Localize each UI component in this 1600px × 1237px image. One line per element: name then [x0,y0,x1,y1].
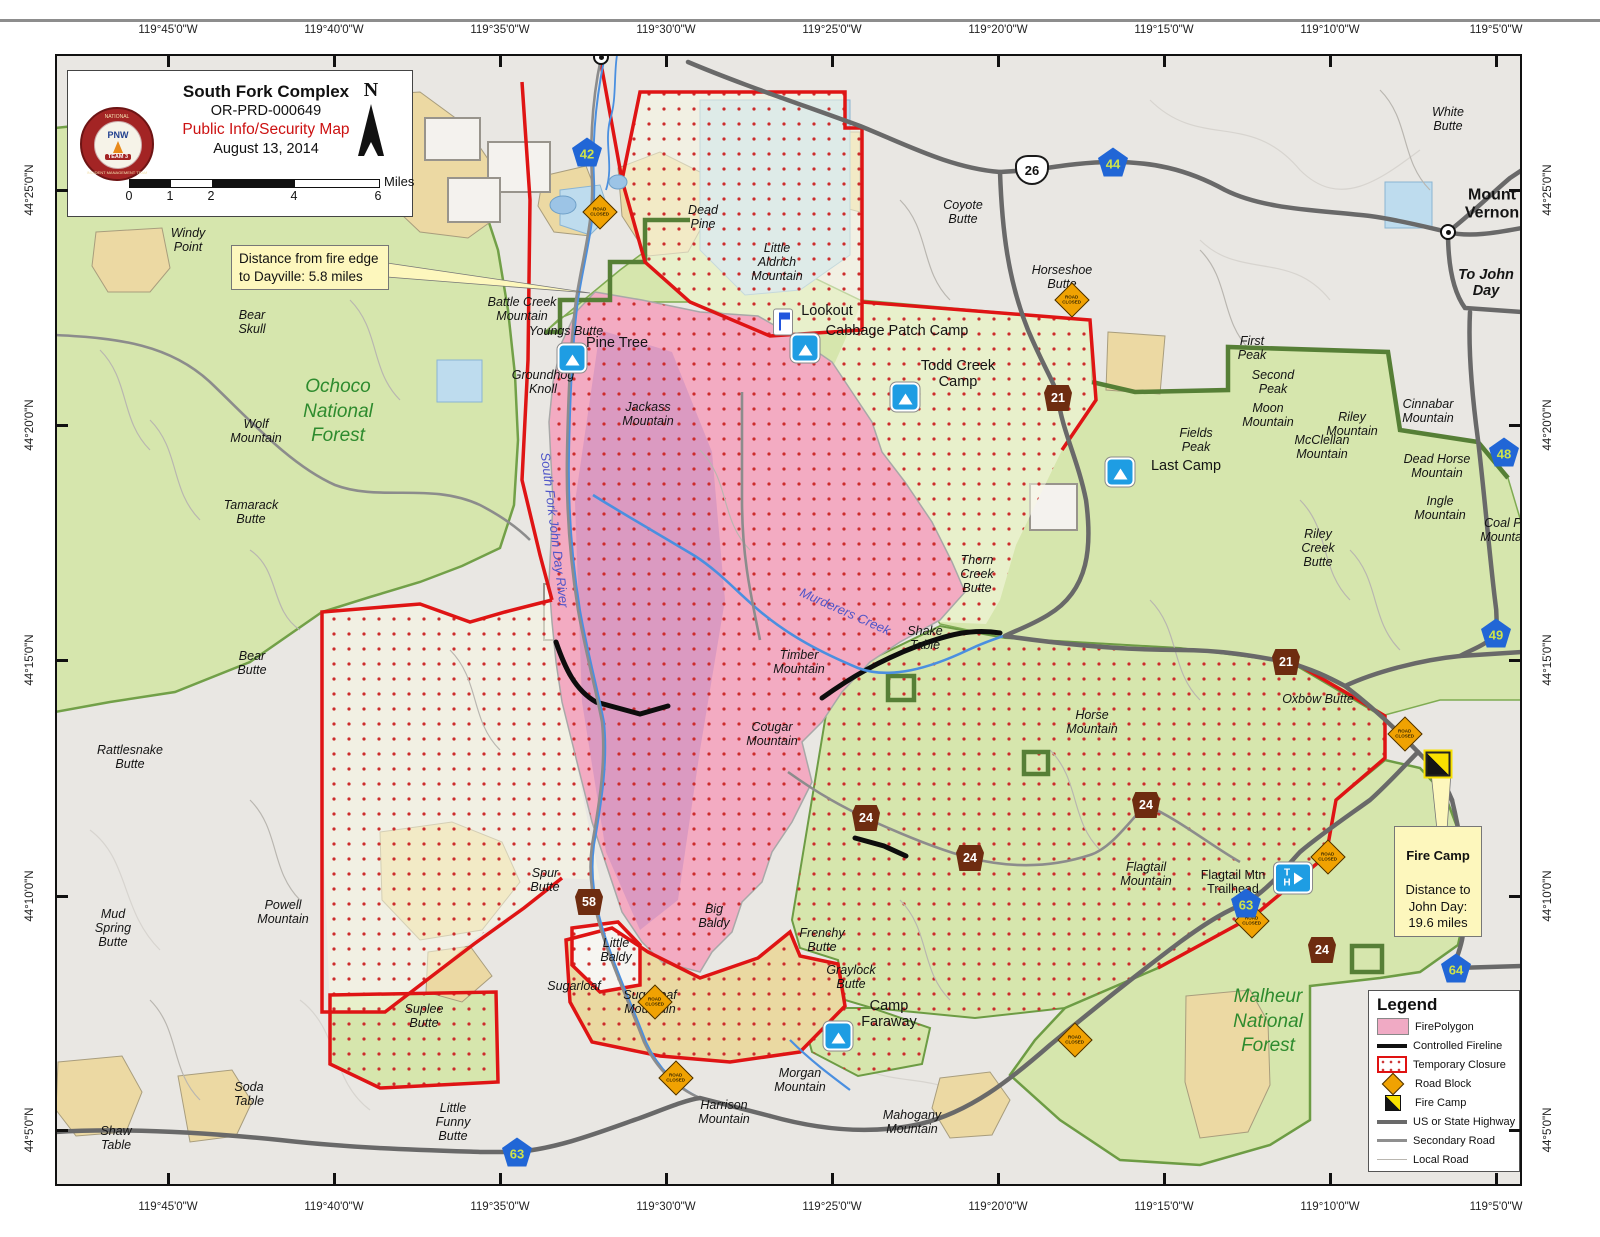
north-arrow-icon [358,104,384,156]
forest-route-shield: 24 [956,845,984,871]
fire-incident-map-page: { "title_block": { "incident_name": "Sou… [0,0,1600,1237]
grid-tick [1495,54,1498,67]
firecamp-callout-title: Fire Camp [1402,848,1474,865]
route-number: 48 [1497,447,1511,462]
campground-icon [891,383,920,412]
legend-row-local: Local Road [1377,1150,1511,1169]
grid-coordinate-label: 119°40'0"W [304,24,363,36]
lake [609,175,627,189]
grid-coordinate-label: 119°15'0"W [1134,24,1193,36]
tent-glyph [1113,469,1127,480]
map-date: August 13, 2014 [156,140,376,158]
incident-name: South Fork Complex [156,81,376,102]
scale-tick: 1 [167,189,174,203]
grid-coordinate-label: 44°15'0"N [24,634,36,685]
highway-swatch [1377,1120,1407,1124]
route-number: 26 [1025,163,1039,178]
route-number: 42 [580,147,594,162]
logo-team-text: TEAM 3 [105,154,131,160]
legend-row-firepolygon: FirePolygon [1377,1017,1511,1036]
road-block-text: ROAD CLOSED [591,207,610,217]
forest-route-shield: 21 [1272,649,1300,675]
legend-title: Legend [1377,995,1511,1015]
map-viewport: Distance from fire edge to Dayville: 5.8… [55,54,1522,1186]
grid-coordinate-label: 119°35'0"W [470,1201,529,1213]
scale-tick: 6 [375,189,382,203]
route-number: 24 [859,811,873,825]
campground-icon [1106,458,1135,487]
road-block-swatch [1382,1072,1405,1095]
scale-tick: 0 [126,189,133,203]
grid-coordinate-label: 44°25'0"N [1542,164,1554,215]
route-number: 58 [582,895,596,909]
grid-tick [167,54,170,67]
route-number: 21 [1279,655,1293,669]
road-block-text: ROAD CLOSED [667,1073,686,1083]
grid-coordinate-label: 119°5'0"W [1470,24,1523,36]
grid-coordinate-label: 119°30'0"W [636,24,695,36]
lookout-flag-icon [773,309,793,336]
grid-coordinate-label: 44°5'0"N [1542,1108,1554,1153]
grid-tick [831,54,834,67]
legend-row-roadblock: Road Block [1377,1074,1511,1093]
grid-coordinate-label: 119°25'0"W [802,24,861,36]
grid-tick [1509,189,1522,192]
legend-label: Temporary Closure [1413,1059,1506,1071]
lake [550,196,576,214]
grid-tick [1495,1173,1498,1186]
legend-row-firecamp: Fire Camp [1377,1093,1511,1112]
map-canvas [55,54,1522,1186]
map-type: Public Info/Security Map [156,120,376,139]
forest-route-shield: 24 [852,805,880,831]
road-block-text: ROAD CLOSED [646,997,665,1007]
legend-label: Secondary Road [1413,1135,1495,1147]
grid-tick [665,54,668,67]
road-block-text: ROAD CLOSED [1243,916,1262,926]
legend-row-secondary: Secondary Road [1377,1131,1511,1150]
forest-route-shield: 58 [575,889,603,915]
logo-ring-text: INCIDENT MANAGEMENT TEAM [82,170,152,175]
grid-coordinate-label: 44°10'0"N [1542,870,1554,921]
grid-coordinate-label: 119°20'0"W [968,24,1027,36]
legend-label: Controlled Fireline [1413,1040,1502,1052]
legend-label: Road Block [1415,1078,1471,1090]
route-number: 49 [1489,628,1503,643]
grid-tick [333,54,336,67]
route-number: 44 [1106,157,1120,172]
grid-tick [1163,54,1166,67]
tent-glyph [898,394,912,405]
grid-coordinate-label: 119°25'0"W [802,1201,861,1213]
tent-glyph [831,1033,845,1044]
incident-team-logo: NATIONAL PNW TEAM 3 INCIDENT MANAGEMENT … [80,107,154,181]
forest-route-shield: 24 [1308,937,1336,963]
grid-tick [1509,659,1522,662]
grid-tick [499,1173,502,1186]
grid-tick [831,1173,834,1186]
grid-tick [1509,1129,1522,1132]
fire-polygon-swatch [1377,1018,1409,1035]
legend-label: Fire Camp [1415,1097,1466,1109]
scale-tick: 4 [291,189,298,203]
grid-tick [665,1173,668,1186]
trailhead-text: T H [1283,869,1290,888]
flame-icon [113,141,123,153]
grid-tick [55,659,68,662]
grid-coordinate-label: 44°25'0"N [24,164,36,215]
route-number: 24 [1139,798,1153,812]
grid-tick [1509,895,1522,898]
grid-tick [1509,424,1522,427]
temporary-closure-swatch [1377,1056,1407,1073]
road-block-text: ROAD CLOSED [1066,1035,1085,1045]
legend: Legend FirePolygon Controlled Fireline T… [1368,990,1520,1172]
grid-coordinate-label: 119°20'0"W [968,1201,1027,1213]
grid-coordinate-label: 119°15'0"W [1134,1201,1193,1213]
campground-icon [558,344,587,373]
legend-label: US or State Highway [1413,1116,1515,1128]
grid-coordinate-label: 119°45'0"W [138,1201,197,1213]
road-block-text: ROAD CLOSED [1063,295,1082,305]
grid-coordinate-label: 119°5'0"W [1470,1201,1523,1213]
grid-tick [499,54,502,67]
tent-glyph [798,345,812,356]
grid-coordinate-label: 44°5'0"N [24,1108,36,1153]
campground-icon [791,334,820,363]
grid-tick [1163,1173,1166,1186]
route-number: 63 [510,1147,524,1162]
route-number: 24 [963,851,977,865]
page-top-rule [0,19,1600,22]
map-world: Distance from fire edge to Dayville: 5.8… [55,54,1522,1186]
legend-label: FirePolygon [1415,1021,1474,1033]
controlled-fireline-swatch [1377,1044,1407,1048]
grid-tick [1329,1173,1332,1186]
scale-tick: 2 [208,189,215,203]
route-number: 24 [1315,943,1329,957]
grid-tick [55,424,68,427]
legend-row-closure: Temporary Closure [1377,1055,1511,1074]
grid-tick [997,54,1000,67]
grid-tick [55,895,68,898]
grid-tick [333,1173,336,1186]
firecamp-callout-body: Distance to John Day: 19.6 miles [1405,882,1470,931]
scale-units: Miles [384,174,414,189]
legend-row-fireline: Controlled Fireline [1377,1036,1511,1055]
title-text: South Fork Complex OR-PRD-000649 Public … [156,81,376,158]
map-title-block: NATIONAL PNW TEAM 3 INCIDENT MANAGEMENT … [67,70,413,217]
firecamp-distance-callout: Fire Camp Distance to John Day: 19.6 mil… [1394,826,1482,937]
trailhead-icon: T H [1274,863,1312,894]
grid-coordinate-label: 119°10'0"W [1300,24,1359,36]
forest-route-shield: 21 [1044,385,1072,411]
route-number: 21 [1051,391,1065,405]
legend-label: Local Road [1413,1154,1469,1166]
logo-center: PNW TEAM 3 [94,121,142,169]
road-block-text: ROAD CLOSED [1319,852,1338,862]
incident-number: OR-PRD-000649 [156,102,376,120]
legend-row-highway: US or State Highway [1377,1112,1511,1131]
grid-coordinate-label: 119°30'0"W [636,1201,695,1213]
fire-camp-swatch [1385,1095,1401,1111]
local-road-swatch [1377,1159,1407,1161]
north-label: N [358,79,384,102]
grid-coordinate-label: 44°15'0"N [1542,634,1554,685]
grid-tick [167,1173,170,1186]
tent-glyph [565,355,579,366]
grid-coordinate-label: 44°20'0"N [24,399,36,450]
campground-icon [824,1022,853,1051]
grid-coordinate-label: 119°35'0"W [470,24,529,36]
logo-pnw-text: PNW [108,130,129,140]
grid-tick [55,1129,68,1132]
grid-coordinate-label: 44°10'0"N [24,870,36,921]
grid-coordinate-label: 44°20'0"N [1542,399,1554,450]
grid-coordinate-label: 119°45'0"W [138,24,197,36]
town-marker-icon [1440,224,1456,240]
grid-tick [997,1173,1000,1186]
dayville-distance-callout: Distance from fire edge to Dayville: 5.8… [231,245,389,290]
fire-camp-icon [1426,752,1451,777]
route-number: 63 [1239,898,1253,913]
secondary-road-swatch [1377,1139,1407,1142]
grid-coordinate-label: 119°10'0"W [1300,1201,1359,1213]
scale-bar [129,179,380,188]
grid-tick [1329,54,1332,67]
north-arrow: N [358,79,384,156]
grid-coordinate-label: 119°40'0"W [304,1201,363,1213]
grid-tick [55,189,68,192]
logo-ring-text: NATIONAL [82,114,152,120]
road-block-text: ROAD CLOSED [1396,729,1415,739]
route-number: 64 [1449,963,1463,978]
forest-route-shield: 24 [1132,792,1160,818]
